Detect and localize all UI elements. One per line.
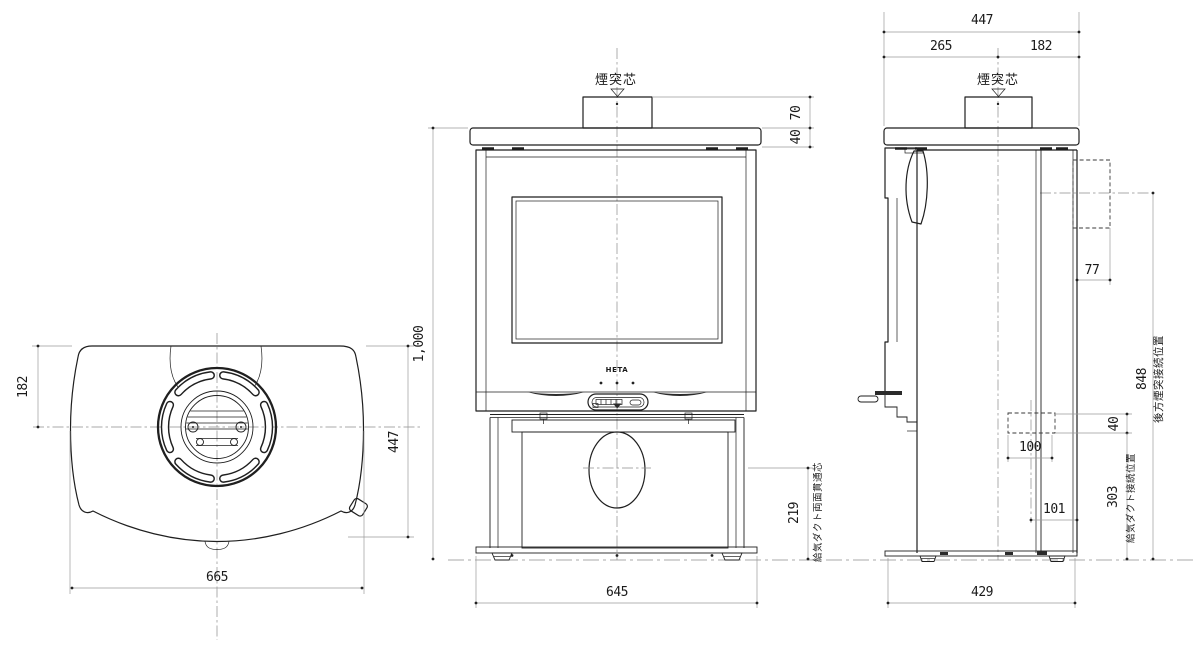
side-door-handle (905, 149, 927, 224)
front-top-plate (470, 128, 761, 145)
front-collar-dot (616, 103, 618, 105)
dim-duct-floor-height: 303 給気ダクト接続位置 (1106, 433, 1137, 560)
side-duct-note: 給気ダクト接続位置 (1125, 453, 1137, 543)
rear-flue-outlet-dashed (1073, 160, 1110, 228)
air-control-lever (588, 394, 648, 410)
front-seam-vent-left (527, 392, 585, 396)
front-pedestal (476, 413, 757, 560)
side-flue-center-label: 煙突芯 (977, 72, 1019, 88)
dim-label-182-side: 182 (1030, 39, 1052, 54)
dim-front-height: 1,000 (412, 127, 468, 561)
air-duct-dashed (1008, 413, 1055, 433)
front-foot-left (492, 553, 512, 560)
pedestal-panel (522, 432, 728, 548)
side-top-plate (884, 128, 1079, 145)
front-flue-collar (583, 97, 652, 128)
dim-label-447-side: 447 (971, 13, 993, 28)
front-flue-center-marker (611, 89, 624, 97)
dim-side-flue-split: 265 182 (883, 39, 1081, 58)
side-collar-dot (997, 103, 999, 105)
stove-dimension-drawing: 182 447 665 煙突芯 HETA (0, 0, 1200, 646)
dim-rear-flue-height: 848 後方煙突接続位置 (1135, 192, 1165, 561)
dim-side-rear-gap: 77 (1076, 228, 1112, 285)
side-latch-bar (875, 391, 902, 395)
dim-label-1000: 1,000 (412, 326, 427, 363)
dim-label-848: 848 (1135, 368, 1150, 390)
pedestal-band (512, 420, 735, 432)
side-flue-collar (965, 97, 1032, 128)
side-foot-front (920, 556, 936, 562)
dim-label-182-top: 182 (16, 376, 31, 398)
dim-label-645: 645 (606, 585, 628, 600)
side-latch-bracket (885, 395, 917, 422)
dim-top-flue-offset: 182 (16, 345, 72, 429)
dim-label-100: 100 (1019, 440, 1041, 455)
dim-top-depth: 447 (348, 345, 414, 539)
side-door-profile (858, 148, 917, 431)
brand-logo: HETA (606, 366, 629, 374)
dim-label-77: 77 (1085, 263, 1100, 278)
side-view: 煙突芯 (858, 12, 1165, 608)
front-view: 煙突芯 HETA (412, 48, 824, 608)
side-latch-pin (858, 396, 878, 402)
side-body (917, 150, 1077, 553)
dim-duct-size: 40 100 (1007, 413, 1132, 462)
dim-side-total-depth: 447 (883, 12, 1081, 126)
dim-label-101: 101 (1043, 502, 1065, 517)
dim-front-duct-height: 219 給気ダクト両面貫通芯 (748, 462, 824, 562)
dim-label-40-front: 40 (789, 130, 804, 145)
door-knob-top-view (348, 497, 368, 517)
dim-label-665: 665 (206, 570, 228, 585)
front-duct-note: 給気ダクト両面貫通芯 (812, 462, 824, 562)
dim-label-447-top: 447 (387, 431, 402, 453)
drawing-canvas: 182 447 665 煙突芯 HETA (0, 0, 1200, 646)
side-flue-center-marker (992, 89, 1005, 97)
dim-label-303: 303 (1106, 486, 1121, 508)
dim-label-429: 429 (971, 585, 993, 600)
dim-front-collar-and-plate: 70 40 (652, 96, 814, 149)
front-flue-center-label: 煙突芯 (595, 72, 637, 88)
top-view: 182 447 665 (16, 333, 420, 640)
dim-label-70: 70 (789, 106, 804, 121)
front-indicator-dots (600, 382, 635, 385)
side-base-plate (885, 551, 1077, 556)
front-seam-vent-right (652, 392, 708, 396)
front-foot-right (722, 553, 742, 560)
dim-front-width: 645 (475, 556, 759, 608)
side-foot-rear (1049, 556, 1065, 562)
dim-label-219: 219 (787, 502, 802, 524)
dim-side-base-depth: 429 (887, 558, 1077, 608)
dim-duct-to-rear: 101 (1030, 502, 1079, 521)
rear-flue-note: 後方煙突接続位置 (1152, 335, 1165, 423)
dim-label-265: 265 (930, 39, 952, 54)
dim-label-40-side: 40 (1107, 417, 1122, 432)
